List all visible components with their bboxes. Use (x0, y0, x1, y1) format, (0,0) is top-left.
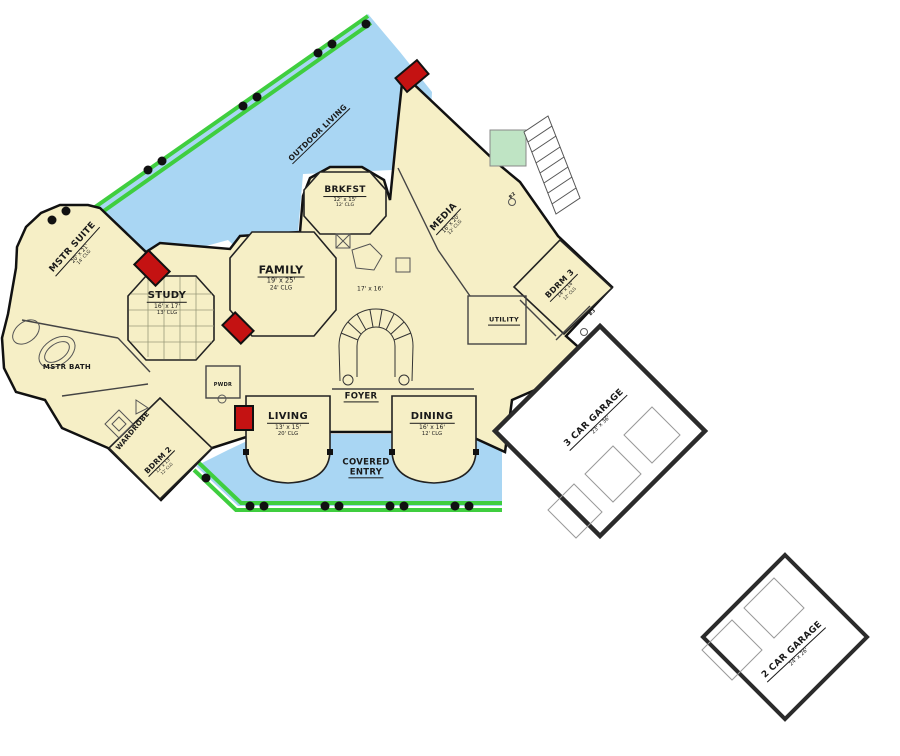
dining-bay (392, 396, 476, 483)
room-name: PWDR (213, 382, 233, 388)
garage-2car-shape (702, 555, 867, 719)
room-label-dining: DINING 16' x 16' 12' CLG (410, 411, 455, 437)
room-name: BRKFST (323, 185, 366, 197)
floor-plan-page: OUTDOOR LIVING MSTR SUITE 20' x 21' 14' … (0, 0, 900, 756)
room-ceiling: 20' CLG (267, 431, 309, 437)
room-label-mstr-bath: MSTR BATH (42, 363, 92, 371)
room-ceiling: 12' CLG (323, 203, 366, 209)
room-label-covered-entry: COVERED ENTRY (341, 457, 390, 478)
room-name: STUDY (147, 290, 187, 303)
room-label-family: FAMILY 19' x 25' 24' CLG (258, 264, 305, 293)
stair-landing (490, 130, 526, 166)
room-dims: 16' x 17' (147, 303, 187, 310)
room-name: MSTR BATH (42, 363, 92, 371)
room-label-living: LIVING 13' x 15' 20' CLG (267, 411, 309, 437)
room-name: UTILITY (488, 317, 520, 326)
room-name: FOYER (344, 391, 379, 402)
room-ceiling: 12' CLG (410, 431, 455, 437)
room-dims: 16' x 16' (410, 424, 455, 431)
fireplace-icon (235, 406, 253, 430)
room-name-line2: ENTRY (349, 468, 383, 479)
room-dims: 13' x 15' (267, 424, 309, 431)
room-name-line1: COVERED (341, 457, 390, 467)
room-label-utility: UTILITY (488, 317, 520, 326)
room-dims: 17' x 16' (357, 285, 383, 292)
room-name: LIVING (267, 411, 309, 424)
room-ceiling: 13' CLG (147, 310, 187, 316)
room-name: FAMILY (258, 264, 305, 278)
room-dims: 19' x 25' (258, 278, 305, 286)
room-label-foyer: FOYER (344, 391, 379, 402)
room-label-kitchen: 17' x 16' (357, 285, 383, 292)
toilet-icon (581, 329, 588, 336)
room-label-brkfst: BRKFST 12' x 15' 12' CLG (323, 185, 366, 209)
room-ceiling: 24' CLG (258, 286, 305, 293)
floor-plan-canvas (0, 0, 900, 756)
living-bay (246, 396, 330, 483)
study-octagon (128, 276, 214, 360)
room-label-study: STUDY 16' x 17' 13' CLG (147, 290, 187, 316)
room-name: DINING (410, 411, 455, 424)
room-label-pwdr: PWDR (213, 382, 233, 388)
